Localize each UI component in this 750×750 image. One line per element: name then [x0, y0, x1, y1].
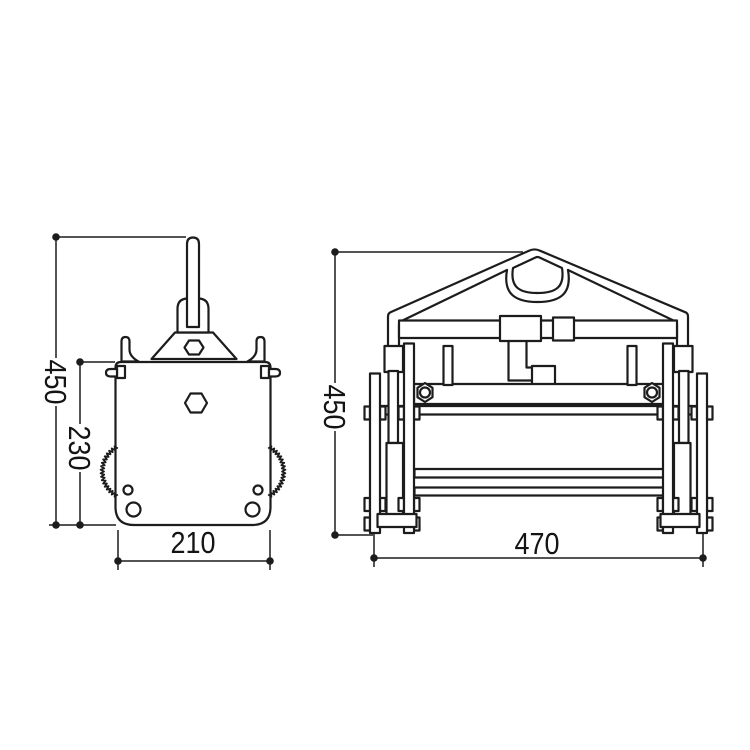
pivot-hole-large-right [246, 503, 260, 517]
hex-bolt-left-center [420, 388, 430, 398]
hook-left [122, 337, 139, 362]
clamp-body-plate [116, 362, 271, 525]
crossbar-block-large [500, 316, 541, 341]
drawing-canvas: 450 230 210 [0, 0, 750, 750]
peg-left [106, 369, 117, 377]
peg-washer-left [117, 366, 125, 378]
rail-lower [415, 488, 664, 496]
peg-right [269, 369, 280, 377]
jaw-plate-inner [404, 344, 414, 534]
hex-bolt-right-center [647, 388, 657, 398]
dim-side-body-width: 210 [171, 525, 216, 560]
crossbar-block-small [553, 318, 574, 341]
stop-post-left [444, 346, 453, 385]
jaw-bottom-cap [378, 514, 417, 527]
technical-drawing: 450 230 210 [0, 0, 750, 750]
peg-washer-right [261, 366, 269, 378]
middle-bar [414, 384, 664, 404]
pivot-hole-small-right [254, 486, 263, 495]
shackle-rod [187, 238, 199, 328]
adjuster-linkage [509, 340, 533, 381]
bracket-hex-bolt [185, 341, 204, 355]
jaw-plate-outer [370, 374, 380, 534]
front-view: 450 470 [317, 248, 713, 567]
jaw-assembly-right [658, 344, 713, 534]
rail-middle [415, 469, 664, 478]
stop-post-right [628, 346, 637, 385]
jaw-sleeve [385, 346, 404, 372]
lifting-eye-hole [512, 257, 562, 293]
hook-right [248, 337, 265, 362]
jaw-assembly-left [365, 344, 420, 534]
pivot-hole-small-left [124, 486, 133, 495]
dim-front-overall-width: 470 [515, 526, 560, 561]
side-view: 450 230 210 [38, 233, 285, 570]
dim-front-overall-height: 450 [317, 385, 352, 430]
dim-side-body-height: 230 [62, 426, 97, 471]
body-hex-bolt [185, 394, 207, 413]
jaw-rod [389, 371, 399, 443]
rail-upper [376, 406, 701, 415]
pivot-hole-large-left [127, 503, 141, 517]
dim-side-overall-height: 450 [38, 360, 73, 405]
